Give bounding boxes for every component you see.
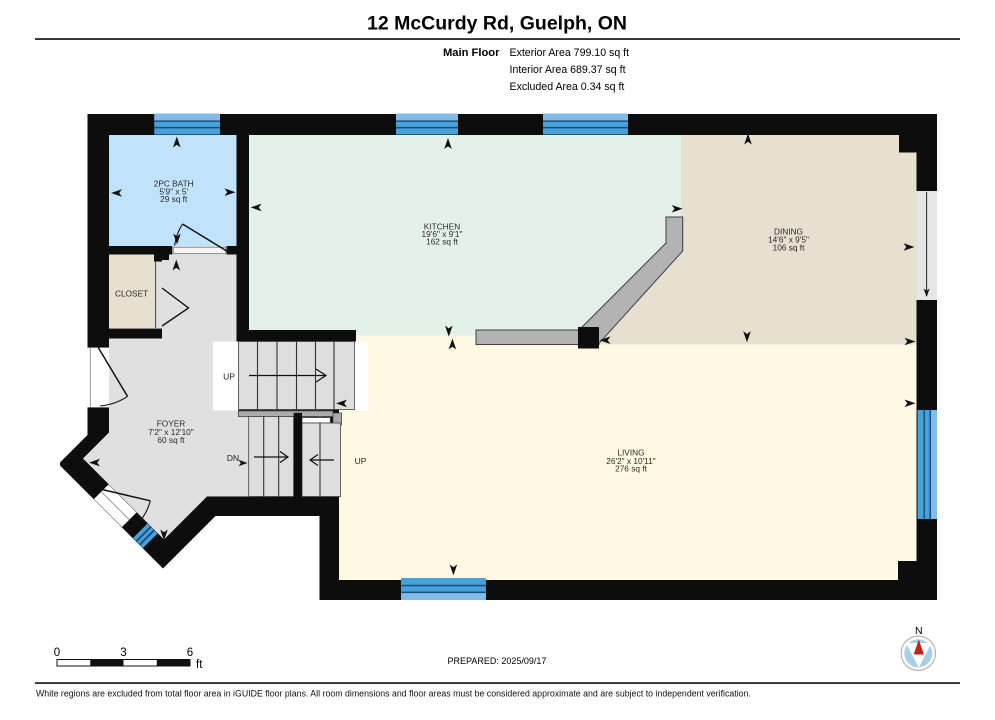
svg-text:3: 3 [120, 647, 126, 659]
svg-text:6: 6 [187, 647, 193, 659]
svg-text:60 sq ft: 60 sq ft [157, 435, 185, 445]
svg-text:12 McCurdy Rd, Guelph, ON: 12 McCurdy Rd, Guelph, ON [367, 13, 627, 35]
svg-text:Exterior Area 799.10 sq ft: Exterior Area 799.10 sq ft [510, 47, 630, 59]
svg-text:29 sq ft: 29 sq ft [160, 194, 188, 204]
svg-text:162 sq ft: 162 sq ft [426, 237, 459, 247]
svg-text:CLOSET: CLOSET [115, 288, 148, 298]
svg-text:UP: UP [355, 456, 367, 466]
svg-text:Interior Area 689.37 sq ft: Interior Area 689.37 sq ft [510, 64, 626, 76]
svg-text:DN: DN [227, 453, 239, 463]
svg-text:Excluded Area 0.34 sq ft: Excluded Area 0.34 sq ft [510, 81, 625, 93]
svg-text:N: N [915, 625, 923, 637]
svg-text:0: 0 [54, 647, 60, 659]
svg-text:Main Floor: Main Floor [443, 47, 500, 59]
svg-text:276 sq ft: 276 sq ft [615, 464, 648, 474]
svg-text:ft: ft [196, 659, 203, 671]
svg-text:PREPARED: 2025/09/17: PREPARED: 2025/09/17 [448, 656, 547, 666]
svg-text:White regions are excluded fro: White regions are excluded from total fl… [36, 689, 751, 699]
svg-text:UP: UP [223, 372, 235, 382]
svg-text:106 sq ft: 106 sq ft [773, 242, 806, 252]
